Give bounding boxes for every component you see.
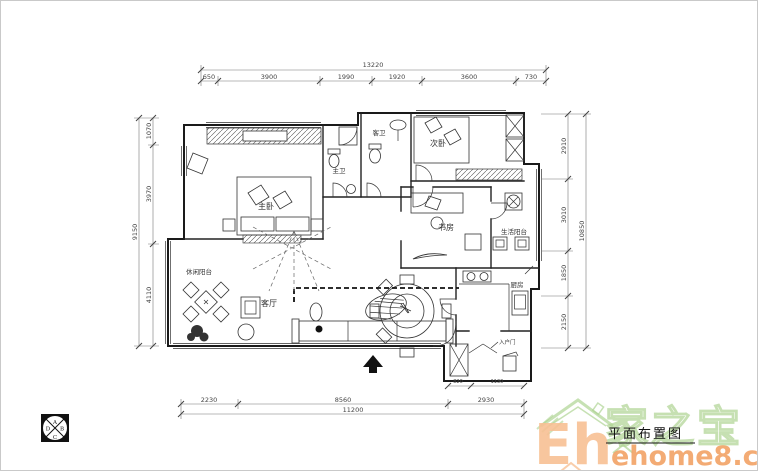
dim-entry-segment: 1130 (491, 379, 504, 385)
furniture-kitchen (459, 266, 533, 331)
room-label-master-bedroom: 主卧 (258, 201, 274, 211)
dim-right-segment: 3010 (560, 207, 568, 224)
dim-bottom-segment: 8560 (335, 396, 352, 404)
dim-right-total: 10850 (578, 221, 586, 242)
basin (390, 120, 406, 130)
watermark-domain: ehome8.com (611, 441, 758, 471)
compass-logo: A B C D (41, 414, 69, 442)
dimension-left: 9150 1070 3970 4110 (131, 115, 159, 349)
toilet (329, 155, 339, 168)
dim-top-segment: 3600 (461, 73, 478, 81)
dim-right-segment: 2910 (560, 138, 568, 155)
floor-lamp (316, 326, 323, 333)
room-label-leisure-balcony: 休闲阳台 (186, 267, 212, 276)
room-label-service-balcony: 生活阳台 (501, 227, 527, 236)
dim-top-segment: 650 (203, 73, 215, 81)
floorplan-drawing: 13220 650 3900 1990 1920 3600 730 9150 1… (1, 1, 758, 471)
room-label-master-bath: 主卫 (333, 166, 347, 175)
dimension-bottom: 2230 8560 2930 11200 (178, 396, 527, 419)
compass-letter-left: D (46, 427, 51, 433)
dim-left-segment: 3970 (145, 186, 153, 203)
furniture-master-bedroom (187, 128, 323, 235)
room-label-study: 书房 (438, 222, 454, 232)
ceiling-line (253, 227, 331, 269)
dim-top-total: 13220 (363, 61, 384, 69)
dim-top-segment: 3900 (261, 73, 278, 81)
drawing-title: 平面布置图 (608, 427, 683, 442)
room-label-entry-door: 入户门 (499, 338, 516, 346)
compass-letter-right: B (60, 427, 64, 433)
dining-table (380, 284, 434, 338)
dim-entry-segment: 820 (453, 379, 463, 385)
compass-letter-bottom: C (53, 435, 57, 441)
dim-bottom-total: 11200 (343, 406, 364, 414)
floorplan-page: 13220 650 3900 1990 1920 3600 730 9150 1… (0, 0, 758, 471)
room-label-second-bedroom: 次卧 (430, 138, 446, 148)
dim-bottom-segment: 2930 (478, 396, 495, 404)
dim-left-segment: 4110 (145, 287, 153, 304)
dim-left-total: 9150 (131, 224, 139, 241)
dim-left-segment: 1070 (145, 123, 153, 140)
water-dispenser (503, 356, 516, 371)
furniture-living-room (238, 227, 459, 343)
room-label-living-room: 客厅 (261, 298, 277, 308)
room-label-guest-bath: 客卫 (373, 128, 387, 137)
title-block: 平面布置图 (606, 427, 695, 443)
dim-right-segment: 2150 (560, 314, 568, 331)
toilet (370, 149, 381, 163)
dim-top-segment: 730 (525, 73, 537, 81)
dimension-top: 13220 650 3900 1990 1920 3600 730 (198, 61, 549, 86)
basin (347, 185, 356, 194)
armchair (241, 297, 260, 318)
room-label-kitchen: 厨房 (511, 280, 524, 289)
furniture-leisure-balcony (183, 282, 229, 342)
dimension-right: 2910 3010 1850 2150 10850 (541, 111, 591, 351)
furniture-master-bath (328, 127, 357, 194)
furniture-guest-bath (369, 120, 406, 163)
dim-top-segment: 1920 (389, 73, 406, 81)
north-arrow-icon (363, 355, 383, 373)
side-table (238, 324, 254, 340)
sliding-door (243, 235, 301, 243)
dim-bottom-segment: 2230 (201, 396, 218, 404)
room-labels: 主卧 主卫 客卫 次卧 书房 生活阳台 厨房 客厅 休闲阳台 入户门 (186, 128, 527, 348)
furniture-service-balcony (493, 193, 529, 250)
dim-top-segment: 1990 (338, 73, 355, 81)
window-lines (166, 111, 542, 349)
wardrobe (456, 169, 522, 180)
watermark-initials: Eh (534, 413, 612, 471)
dim-right-segment: 1850 (560, 265, 568, 282)
furniture-entry (450, 344, 518, 376)
